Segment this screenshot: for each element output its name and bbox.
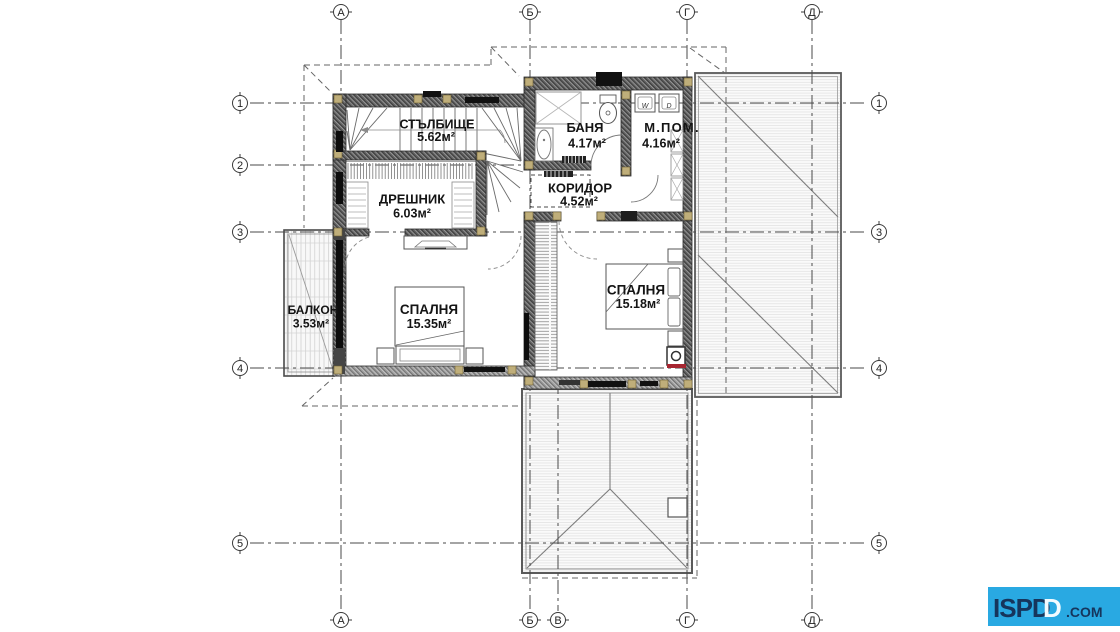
svg-text:3: 3 [876, 227, 882, 239]
svg-text:4: 4 [876, 363, 882, 375]
svg-text:1: 1 [237, 98, 243, 110]
svg-text:D: D [1043, 593, 1061, 623]
svg-text:ДРЕШНИК: ДРЕШНИК [379, 192, 445, 207]
svg-text:Г: Г [684, 7, 690, 19]
svg-text:БАЛКОН: БАЛКОН [288, 303, 339, 317]
svg-text:5.62м²: 5.62м² [417, 130, 455, 144]
svg-text:СПАЛНЯ: СПАЛНЯ [607, 283, 665, 298]
svg-text:М.ПОМ.: М.ПОМ. [644, 120, 700, 135]
svg-text:СПАЛНЯ: СПАЛНЯ [400, 302, 458, 317]
svg-text:5: 5 [876, 538, 882, 550]
svg-text:Д: Д [808, 7, 816, 19]
svg-text:Б: Б [526, 7, 533, 19]
svg-text:4.16м²: 4.16м² [642, 137, 680, 151]
svg-text:Д: Д [808, 615, 816, 627]
svg-text:3.53м²: 3.53м² [293, 317, 329, 331]
svg-text:2: 2 [237, 160, 243, 172]
svg-text:4: 4 [237, 363, 243, 375]
svg-text:Г: Г [684, 615, 690, 627]
svg-text:15.35м²: 15.35м² [407, 317, 452, 331]
svg-text:3: 3 [237, 227, 243, 239]
svg-text:Б: Б [526, 615, 533, 627]
svg-text:ISPD: ISPD [993, 593, 1050, 623]
svg-text:15.18м²: 15.18м² [616, 297, 661, 311]
svg-text:1: 1 [876, 98, 882, 110]
svg-text:А: А [337, 7, 345, 19]
svg-text:D: D [666, 103, 671, 110]
svg-text:А: А [337, 615, 345, 627]
svg-text:4.52м²: 4.52м² [560, 195, 598, 209]
svg-text:В: В [554, 615, 561, 627]
svg-text:.COM: .COM [1066, 604, 1103, 620]
svg-text:6.03м²: 6.03м² [393, 207, 431, 221]
svg-text:КОРИДОР: КОРИДОР [548, 181, 612, 196]
svg-text:4.17м²: 4.17м² [568, 137, 606, 151]
svg-text:БАНЯ: БАНЯ [567, 120, 604, 135]
svg-text:5: 5 [237, 538, 243, 550]
